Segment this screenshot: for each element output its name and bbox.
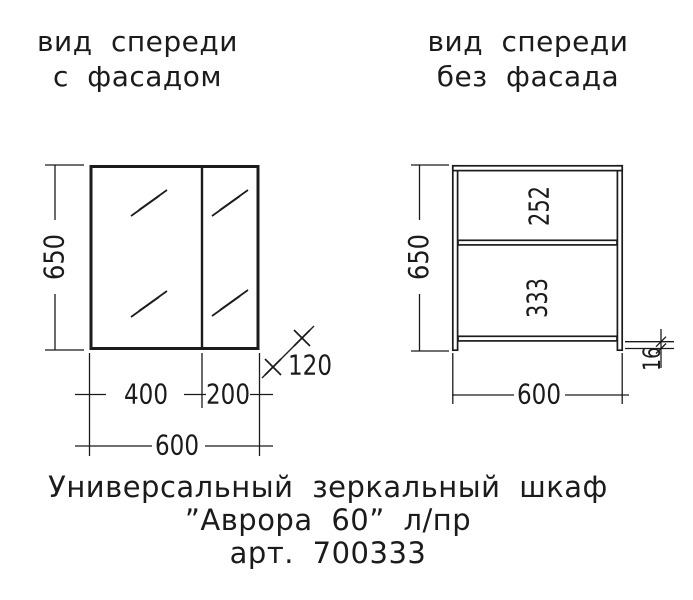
left-height-dimension: 650: [38, 165, 85, 350]
panel-thickness-dim-label: 16: [638, 347, 666, 371]
product-model: ”Аврора 60” л/пр: [8, 504, 648, 537]
panel-thickness-dimension: 16: [625, 329, 674, 371]
right-view-drawing: 252 333 650 600: [402, 165, 674, 411]
depth-dimension: 120: [262, 326, 332, 382]
right-side-panel: [617, 166, 622, 350]
left-width-dimensions: 400 200 600: [75, 353, 273, 462]
middle-shelf: [458, 240, 617, 245]
right-height-dim-label: 650: [402, 234, 435, 280]
page-root: вид спереди с фасадом вид спереди без фа…: [0, 0, 693, 600]
right-width-dimension: 600: [452, 353, 629, 411]
mirror-hatch-marks: [131, 190, 248, 317]
left-height-dim-label: 650: [38, 234, 71, 280]
product-article: арт. 700333: [8, 537, 648, 570]
product-name: Универсальный зеркальный шкаф: [8, 471, 648, 504]
product-caption: Универсальный зеркальный шкаф ”Аврора 60…: [8, 471, 648, 570]
mirror-hatch-mark: [139, 291, 167, 311]
right-height-dimension: 650: [402, 165, 449, 351]
upper-section-dim-label: 252: [523, 186, 556, 226]
depth-dim-label: 120: [288, 349, 332, 382]
right-door-width-dim-label: 200: [206, 378, 250, 411]
left-view-drawing: 650 400 200 600: [38, 165, 333, 462]
mirror-hatch-mark: [220, 290, 248, 310]
bottom-panel: [458, 336, 617, 341]
mirror-hatch-mark: [139, 190, 167, 210]
mirror-hatch-mark: [220, 190, 248, 210]
left-side-panel: [453, 166, 458, 350]
lower-section-dim-label: 333: [521, 278, 554, 318]
right-total-width-dim-label: 600: [517, 378, 561, 411]
left-door-width-dim-label: 400: [124, 378, 168, 411]
top-panel: [453, 166, 622, 171]
left-total-width-dim-label: 600: [155, 429, 199, 462]
cabinet-outline: [91, 167, 258, 349]
